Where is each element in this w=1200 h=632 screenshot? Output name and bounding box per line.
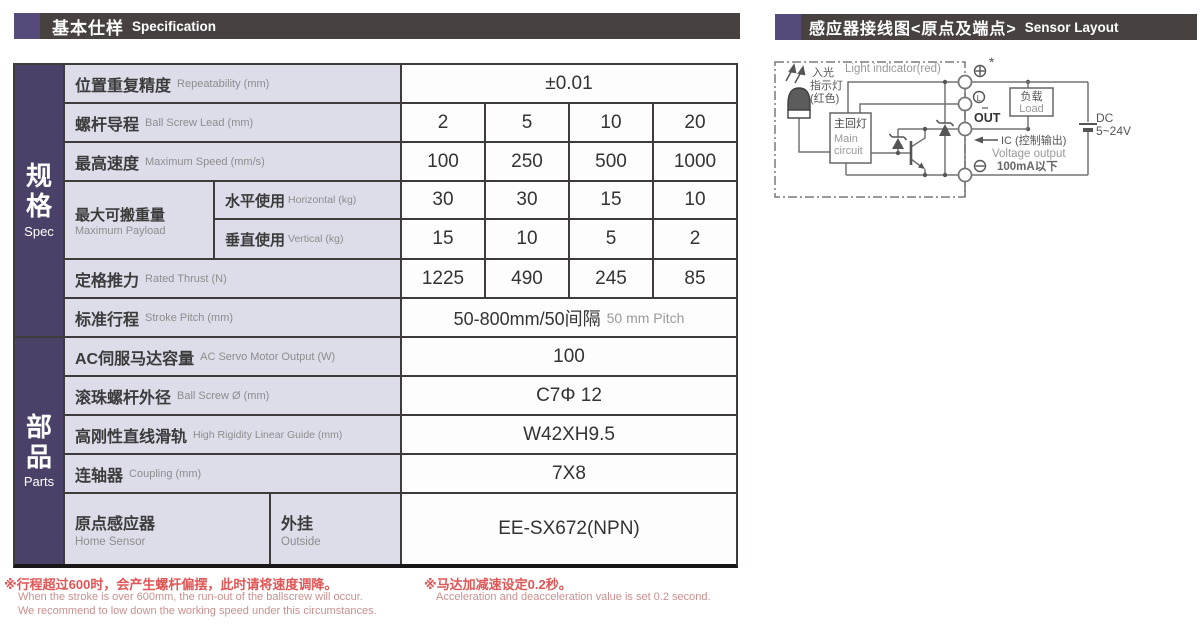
cell-value: 10	[654, 182, 736, 218]
load-label-zh: 负载	[1021, 89, 1043, 103]
cell-value: C7Φ 12	[402, 377, 736, 414]
table-row-coupling: 连轴器Coupling (mm) 7X8	[65, 455, 736, 494]
row-label-en: Home Sensor	[75, 536, 269, 548]
row-label-zh: 高刚性直线滑轨	[75, 423, 187, 447]
zener-diode-right	[937, 120, 954, 136]
table-row-linear-guide: 高刚性直线滑轨High Rigidity Linear Guide (mm) W…	[65, 416, 736, 455]
row-label-zh: AC伺服马达容量	[75, 345, 194, 369]
cell-value: 10	[570, 104, 654, 141]
row-label-zh: 位置重复精度	[75, 72, 171, 96]
main-circuit-label-en2: circuit	[834, 145, 863, 157]
ic-arrow-head	[974, 137, 983, 144]
dc-label-line2: 5~24V	[1096, 124, 1131, 138]
table-row-repeatability: 位置重复精度Repeatability (mm) ±0.01	[65, 65, 736, 104]
subrow-label-en: Vertical (kg)	[288, 233, 343, 245]
payload-label-cell: 最大可搬重量 Maximum Payload	[65, 182, 215, 258]
light-indicator-label: Light indicator(red)	[845, 63, 941, 75]
table-row-stroke-pitch: 标准行程Stroke Pitch (mm) 50-800mm/50间隔 50 m…	[65, 299, 736, 338]
row-label-en: Maximum Payload	[75, 225, 213, 237]
footnote-1-en-line1: When the stroke is over 600mm, the run-o…	[18, 591, 363, 603]
cell-value: 100	[402, 143, 486, 180]
row-label-en: Repeatability (mm)	[177, 78, 269, 90]
current-limit-label: 100mA以下	[997, 160, 1058, 173]
row-label-zh: 滚珠螺杆外径	[75, 384, 171, 408]
payload-vertical-row: 垂直使用Vertical (kg) 15 10 5 2	[215, 220, 736, 258]
payload-horizontal-row: 水平使用Horizontal (kg) 30 30 15 10	[215, 182, 736, 220]
row-label-zh: 连轴器	[75, 462, 123, 486]
footnote-1-en-line2: We recommend to low down the working spe…	[18, 605, 377, 617]
spec-sheet-page: 基本仕样 Specification 感应器接线图<原点及端点> Sensor …	[0, 0, 1200, 632]
incident-light-label-2: 指示灯	[810, 78, 843, 92]
led-indicator-icon	[788, 88, 810, 118]
cell-value: 15	[570, 182, 654, 218]
cell-value: 30	[402, 182, 486, 218]
light-ray-arrows	[786, 65, 805, 83]
sidebar-parts-zh: 部品	[26, 413, 52, 473]
incident-light-label-1: 入光	[812, 65, 834, 79]
row-label-zh: 最大可搬重量	[75, 204, 213, 225]
accent-square	[14, 13, 40, 39]
star-note: *	[989, 54, 995, 70]
accent-square	[775, 14, 801, 40]
table-row-home-sensor: 原点感应器 Home Sensor 外挂 Outside EE-SX672(NP…	[65, 494, 736, 564]
sensor-wiring-diagram: 主回灯 Main circuit * L OUT	[768, 52, 1200, 204]
cell-value: 30	[486, 182, 570, 218]
l-terminal-icon: L	[974, 92, 989, 109]
cell-value: W42XH9.5	[402, 416, 736, 453]
section-title-zh: 感应器接线图<原点及端点>	[809, 15, 1017, 39]
row-label-en: Ball Screw Ø (mm)	[177, 390, 269, 402]
cell-value: 7X8	[402, 455, 736, 492]
plus-terminal-icon	[975, 66, 986, 77]
sidebar-parts-en: Parts	[24, 474, 54, 489]
sidebar-spec-zh: 规格	[26, 162, 52, 222]
dc-label-line1: DC	[1096, 111, 1114, 125]
table-sidebar: 规格 Spec 部品 Parts	[15, 65, 65, 564]
table-row-rated-thrust: 定格推力Rated Thrust (N) 1225 490 245 85	[65, 260, 736, 299]
row-label-zh: 原点感应器	[75, 510, 269, 534]
subrow-label-en: Outside	[281, 536, 400, 548]
row-label-en: Rated Thrust (N)	[145, 273, 227, 285]
subrow-label-zh: 垂直使用	[225, 229, 285, 250]
row-label-zh: 螺杆导程	[75, 111, 139, 135]
ic-label: IC (控制输出)	[1001, 133, 1066, 147]
sidebar-spec-en: Spec	[24, 224, 54, 239]
cell-value: 250	[486, 143, 570, 180]
out-terminal-label: OUT	[974, 111, 1001, 125]
load-label-en: Load	[1019, 103, 1043, 115]
row-label-en: Maximum Speed (mm/s)	[145, 156, 265, 168]
section-title-zh: 基本仕样	[52, 14, 124, 39]
cell-value: 500	[570, 143, 654, 180]
footnote-2-en: Acceleration and deacceleration value is…	[436, 591, 711, 603]
section-title-en: Sensor Layout	[1025, 20, 1119, 35]
row-label-zh: 最高速度	[75, 150, 139, 174]
section-header-specification: 基本仕样 Specification	[14, 13, 740, 39]
subrow-label-zh: 水平使用	[225, 190, 285, 211]
cell-value: 490	[486, 260, 570, 297]
cell-value: 10	[486, 220, 570, 258]
cell-value: ±0.01	[402, 65, 736, 102]
cell-value: 245	[570, 260, 654, 297]
cell-value: 20	[654, 104, 736, 141]
minus-terminal-icon	[975, 161, 986, 172]
cell-value: 1225	[402, 260, 486, 297]
cell-value: 50-800mm/50间隔 50 mm Pitch	[402, 299, 736, 336]
sidebar-group-parts: 部品 Parts	[15, 338, 63, 564]
cell-value: 100	[402, 338, 736, 375]
subrow-label-en: Horizontal (kg)	[288, 194, 356, 206]
section-header-sensor-layout: 感应器接线图<原点及端点> Sensor Layout	[775, 14, 1197, 40]
svg-text:L: L	[977, 93, 982, 103]
row-label-zh: 标准行程	[75, 306, 139, 330]
sidebar-group-spec: 规格 Spec	[15, 65, 63, 338]
row-label-zh: 定格推力	[75, 267, 139, 291]
subrow-label-zh: 外挂	[281, 510, 400, 534]
cell-value: 2	[402, 104, 486, 141]
section-title-en: Specification	[132, 19, 216, 34]
battery-icon	[1079, 124, 1097, 130]
main-circuit-label-zh: 主回灯	[834, 117, 867, 130]
table-rows: 位置重复精度Repeatability (mm) ±0.01 螺杆导程Ball …	[65, 65, 736, 564]
row-label-en: Coupling (mm)	[129, 468, 201, 480]
table-row-ball-screw-od: 滚珠螺杆外径Ball Screw Ø (mm) C7Φ 12	[65, 377, 736, 416]
cell-value: 1000	[654, 143, 736, 180]
zener-diode-left	[890, 134, 907, 149]
voltage-output-label: Voltage output	[992, 148, 1066, 160]
main-circuit-label-en1: Main	[834, 133, 858, 145]
table-row-servo-output: AC伺服马达容量AC Servo Motor Output (W) 100	[65, 338, 736, 377]
row-label-en: Ball Screw Lead (mm)	[145, 117, 253, 129]
table-row-ball-screw-lead: 螺杆导程Ball Screw Lead (mm) 2 5 10 20	[65, 104, 736, 143]
table-row-max-payload: 最大可搬重量 Maximum Payload 水平使用Horizontal (k…	[65, 182, 736, 260]
cell-value: EE-SX672(NPN)	[402, 494, 736, 564]
cell-value: 5	[486, 104, 570, 141]
cell-value: 5	[570, 220, 654, 258]
row-label-en: Stroke Pitch (mm)	[145, 312, 233, 324]
specification-table: 规格 Spec 部品 Parts 位置重复精度Repeatability (mm…	[13, 63, 738, 568]
row-label-en: AC Servo Motor Output (W)	[200, 351, 335, 363]
cell-value: 2	[654, 220, 736, 258]
stroke-value-main: 50-800mm/50间隔	[454, 305, 601, 331]
table-row-max-speed: 最高速度Maximum Speed (mm/s) 100 250 500 100…	[65, 143, 736, 182]
row-label-en: High Rigidity Linear Guide (mm)	[193, 429, 342, 441]
cell-value: 85	[654, 260, 736, 297]
stroke-value-sub: 50 mm Pitch	[607, 310, 685, 326]
incident-light-label-3: (红色)	[810, 91, 839, 105]
cell-value: 15	[402, 220, 486, 258]
